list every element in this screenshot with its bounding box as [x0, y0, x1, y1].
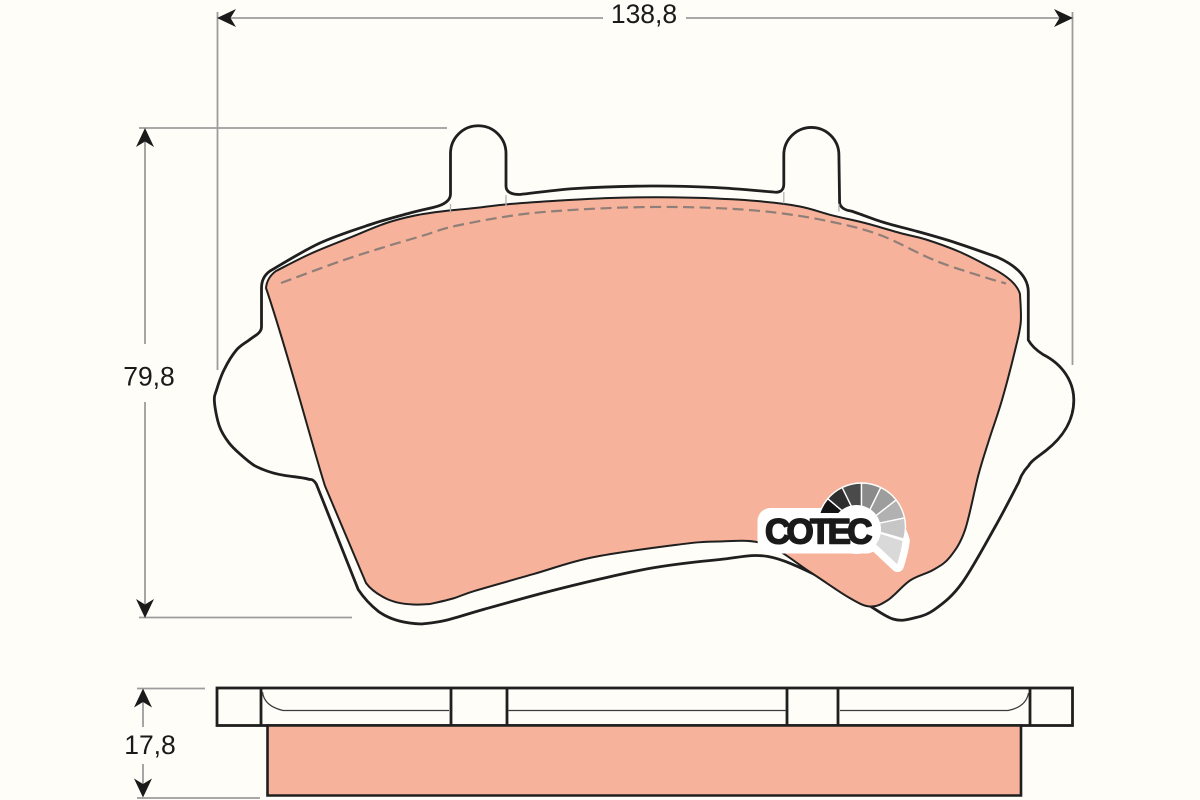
svg-text:COTEC: COTEC [765, 513, 872, 552]
svg-text:79,8: 79,8 [123, 362, 175, 392]
svg-text:17,8: 17,8 [124, 730, 176, 760]
svg-text:138,8: 138,8 [611, 0, 677, 29]
